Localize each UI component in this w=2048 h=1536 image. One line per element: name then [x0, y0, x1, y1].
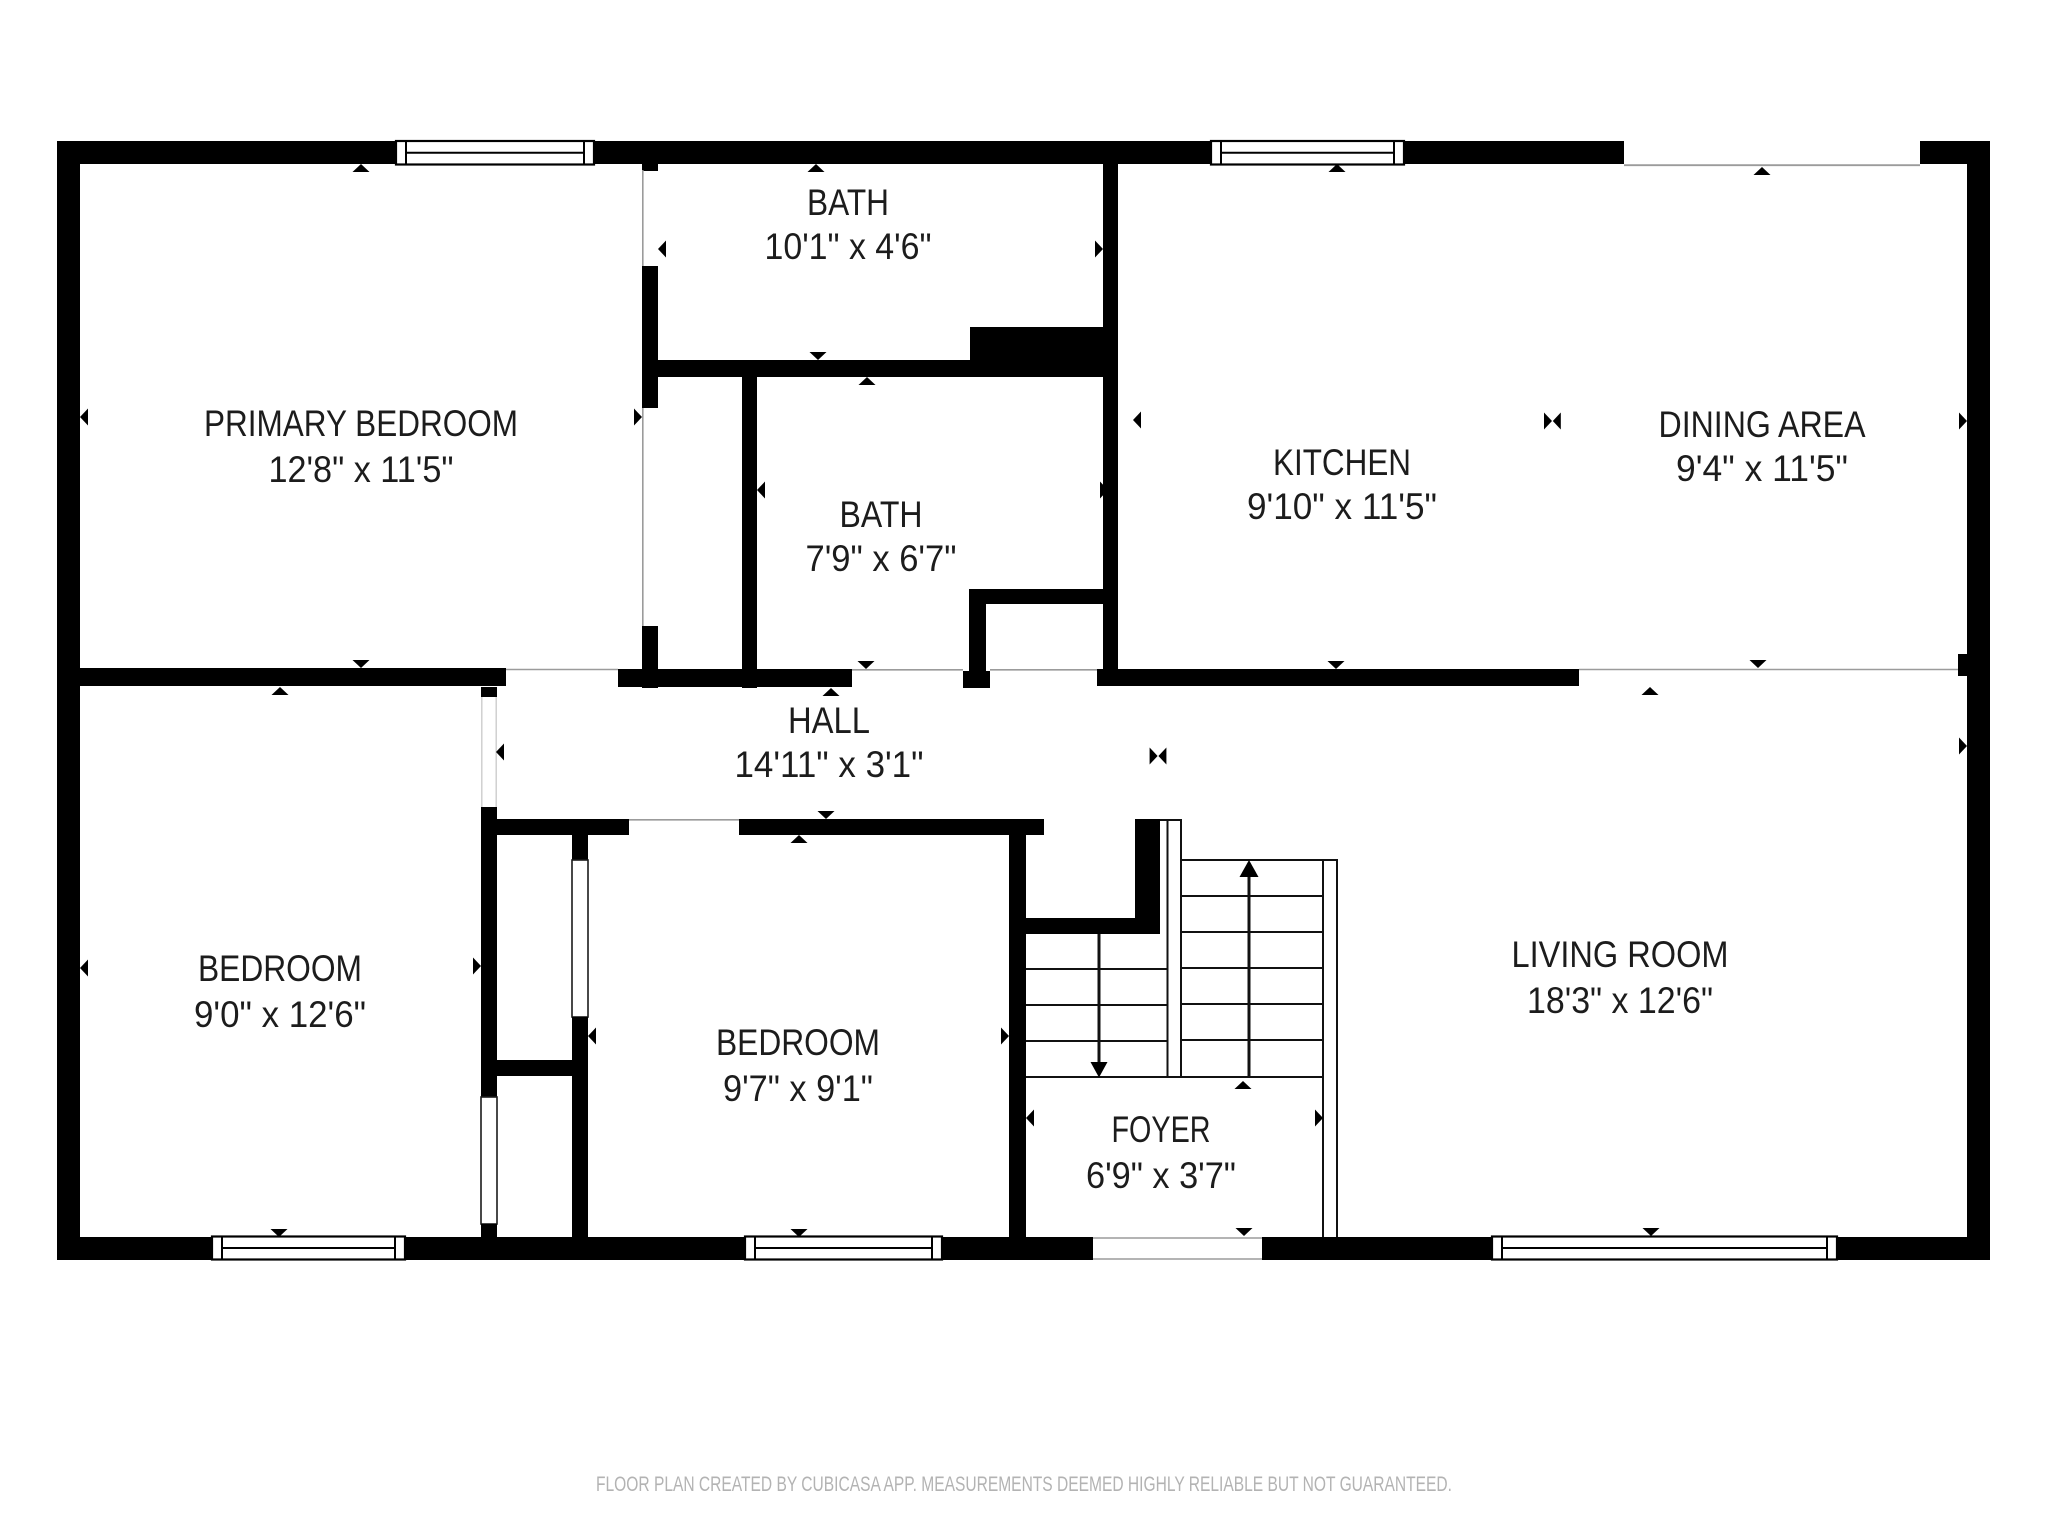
- svg-text:12'8" x 11'5": 12'8" x 11'5": [269, 449, 454, 490]
- svg-text:7'9" x 6'7": 7'9" x 6'7": [806, 538, 957, 579]
- svg-text:10'1" x 4'6": 10'1" x 4'6": [765, 226, 932, 267]
- svg-text:KITCHEN: KITCHEN: [1273, 442, 1411, 483]
- svg-text:9'7" x 9'1": 9'7" x 9'1": [723, 1068, 873, 1109]
- svg-text:BEDROOM: BEDROOM: [716, 1022, 880, 1063]
- svg-text:FLOOR PLAN CREATED BY CUBICASA: FLOOR PLAN CREATED BY CUBICASA APP. MEAS…: [596, 1472, 1452, 1496]
- svg-text:6'9" x 3'7": 6'9" x 3'7": [1086, 1155, 1236, 1196]
- svg-text:BATH: BATH: [840, 494, 923, 535]
- svg-text:18'3" x 12'6": 18'3" x 12'6": [1527, 980, 1713, 1021]
- svg-text:9'0" x 12'6": 9'0" x 12'6": [194, 994, 366, 1035]
- svg-text:BEDROOM: BEDROOM: [198, 948, 362, 989]
- svg-text:14'11" x 3'1": 14'11" x 3'1": [735, 744, 924, 785]
- svg-text:PRIMARY BEDROOM: PRIMARY BEDROOM: [204, 403, 518, 444]
- svg-text:9'10" x 11'5": 9'10" x 11'5": [1247, 486, 1437, 527]
- svg-text:FOYER: FOYER: [1112, 1109, 1211, 1150]
- svg-text:9'4" x 11'5": 9'4" x 11'5": [1676, 448, 1848, 489]
- svg-text:HALL: HALL: [788, 700, 870, 741]
- svg-text:LIVING ROOM: LIVING ROOM: [1512, 934, 1729, 975]
- svg-text:DINING AREA: DINING AREA: [1659, 404, 1866, 445]
- svg-text:BATH: BATH: [807, 182, 889, 223]
